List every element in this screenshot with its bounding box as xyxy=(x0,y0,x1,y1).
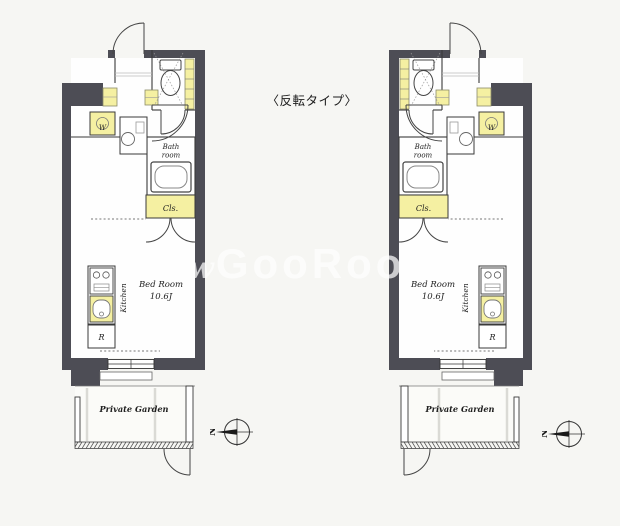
kitchen-label: Kitchen xyxy=(119,283,128,313)
north-label: N xyxy=(542,430,550,438)
compass-icon xyxy=(216,418,253,446)
north-label: N xyxy=(210,428,218,436)
floorplan-right: W Bath room Cls. Bed Room 10.6J Kitchen … xyxy=(386,13,536,478)
closet-label: Cls. xyxy=(416,204,431,213)
compass-right: N xyxy=(542,414,590,454)
plan-type-title: 〈反転タイプ〉 xyxy=(250,90,374,109)
bathroom-label: Bath xyxy=(414,143,432,151)
floorplan-left: W Bath room Cls. Bed Room 10.6J Kitchen … xyxy=(58,13,208,478)
closet-label: Cls. xyxy=(163,204,178,213)
garden-label: Private Garden xyxy=(425,404,495,414)
kitchen-label: Kitchen xyxy=(461,283,470,313)
compass-left: N xyxy=(210,412,258,452)
floorplan-sheet: W Bath room Cls. Bed Room 10.6J Kitchen … xyxy=(0,0,620,526)
bathroom-label: Bath xyxy=(162,143,180,151)
bedroom-size-label: 10.6J xyxy=(422,292,445,302)
compass-icon xyxy=(548,420,585,448)
bedroom-label: Bed Room xyxy=(410,280,455,290)
fridge-label: R xyxy=(97,333,104,342)
bedroom-size-label: 10.6J xyxy=(150,292,173,302)
garden-label: Private Garden xyxy=(99,404,169,414)
bedroom-label: Bed Room xyxy=(138,280,183,290)
fridge-label: R xyxy=(488,333,495,342)
bathroom-label2: room xyxy=(162,152,181,160)
washer-label: W xyxy=(99,124,107,132)
bathroom-label2: room xyxy=(414,152,433,160)
washer-label: W xyxy=(488,124,496,132)
